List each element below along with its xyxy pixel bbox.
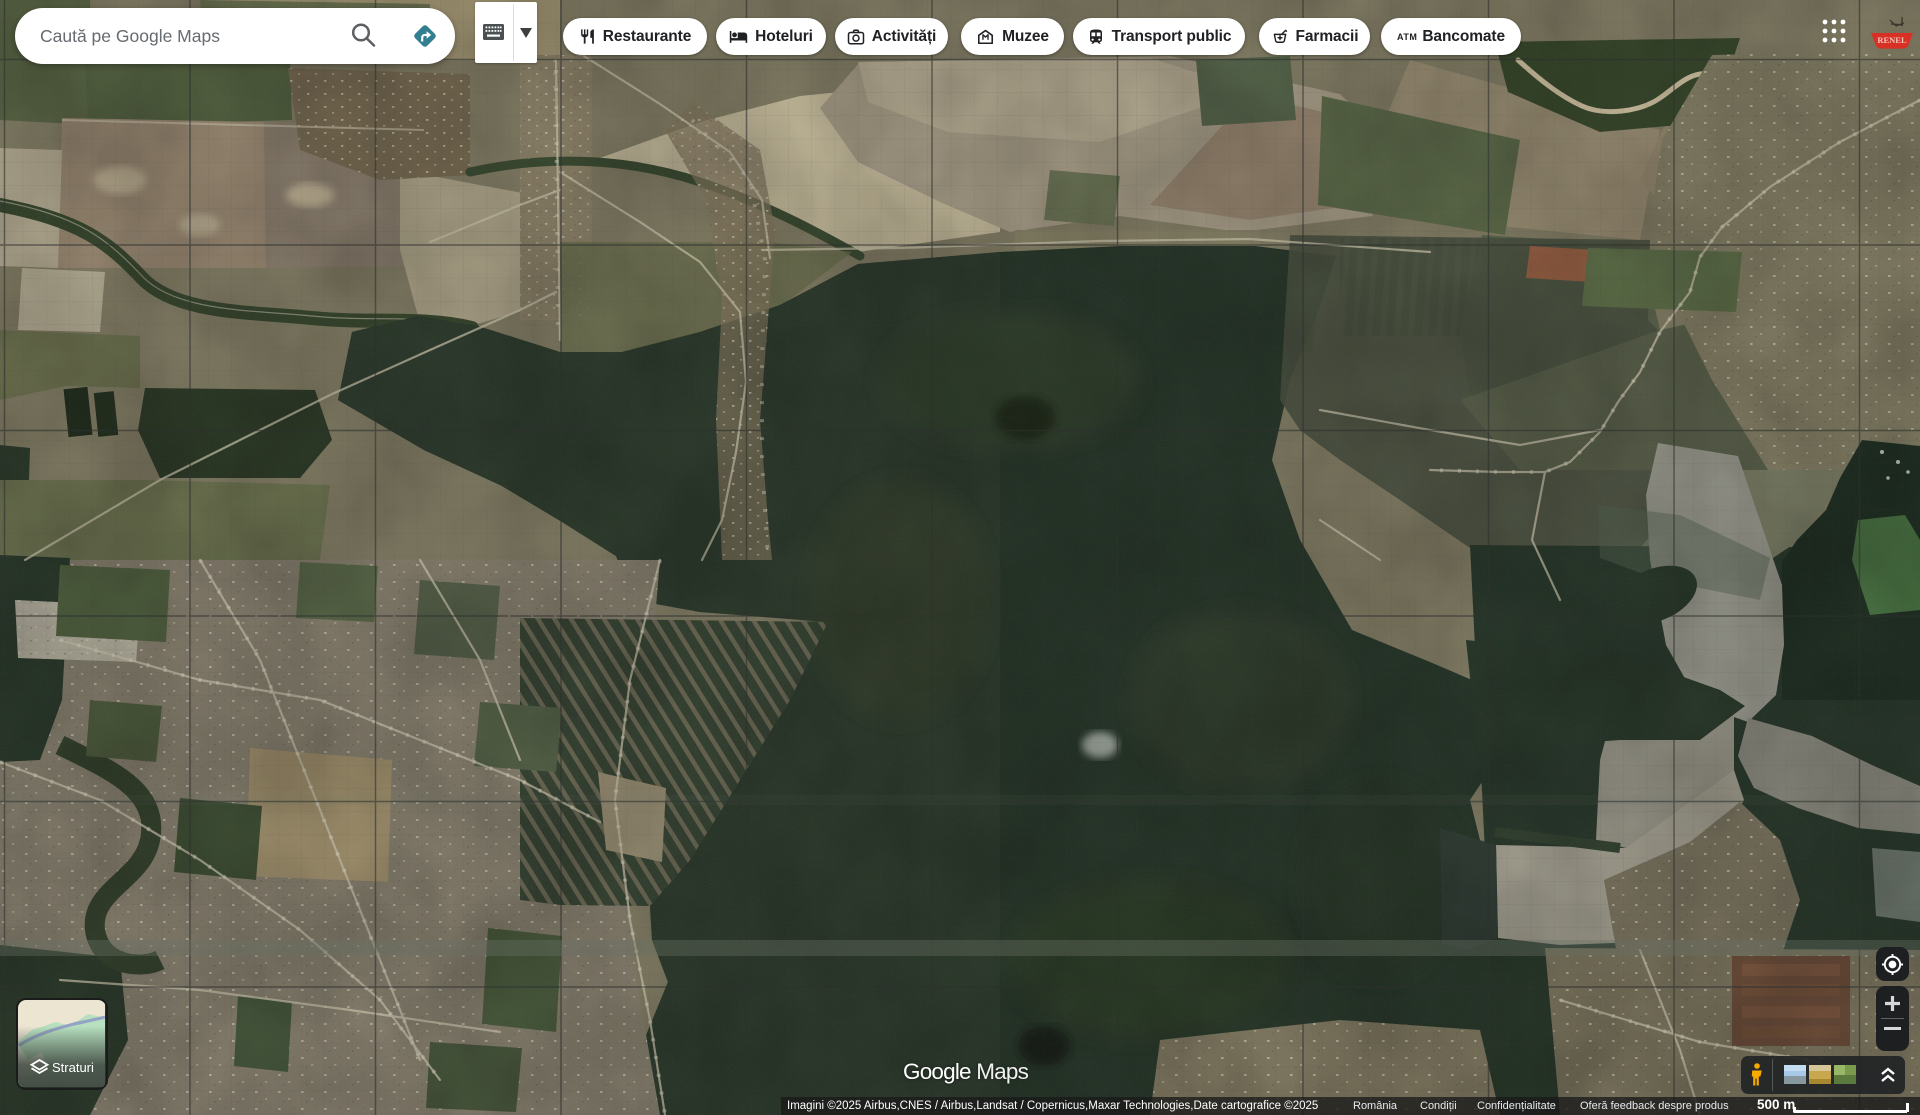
svg-text:RENEL: RENEL (1877, 35, 1907, 45)
svg-text:Straturi: Straturi (52, 1060, 94, 1075)
